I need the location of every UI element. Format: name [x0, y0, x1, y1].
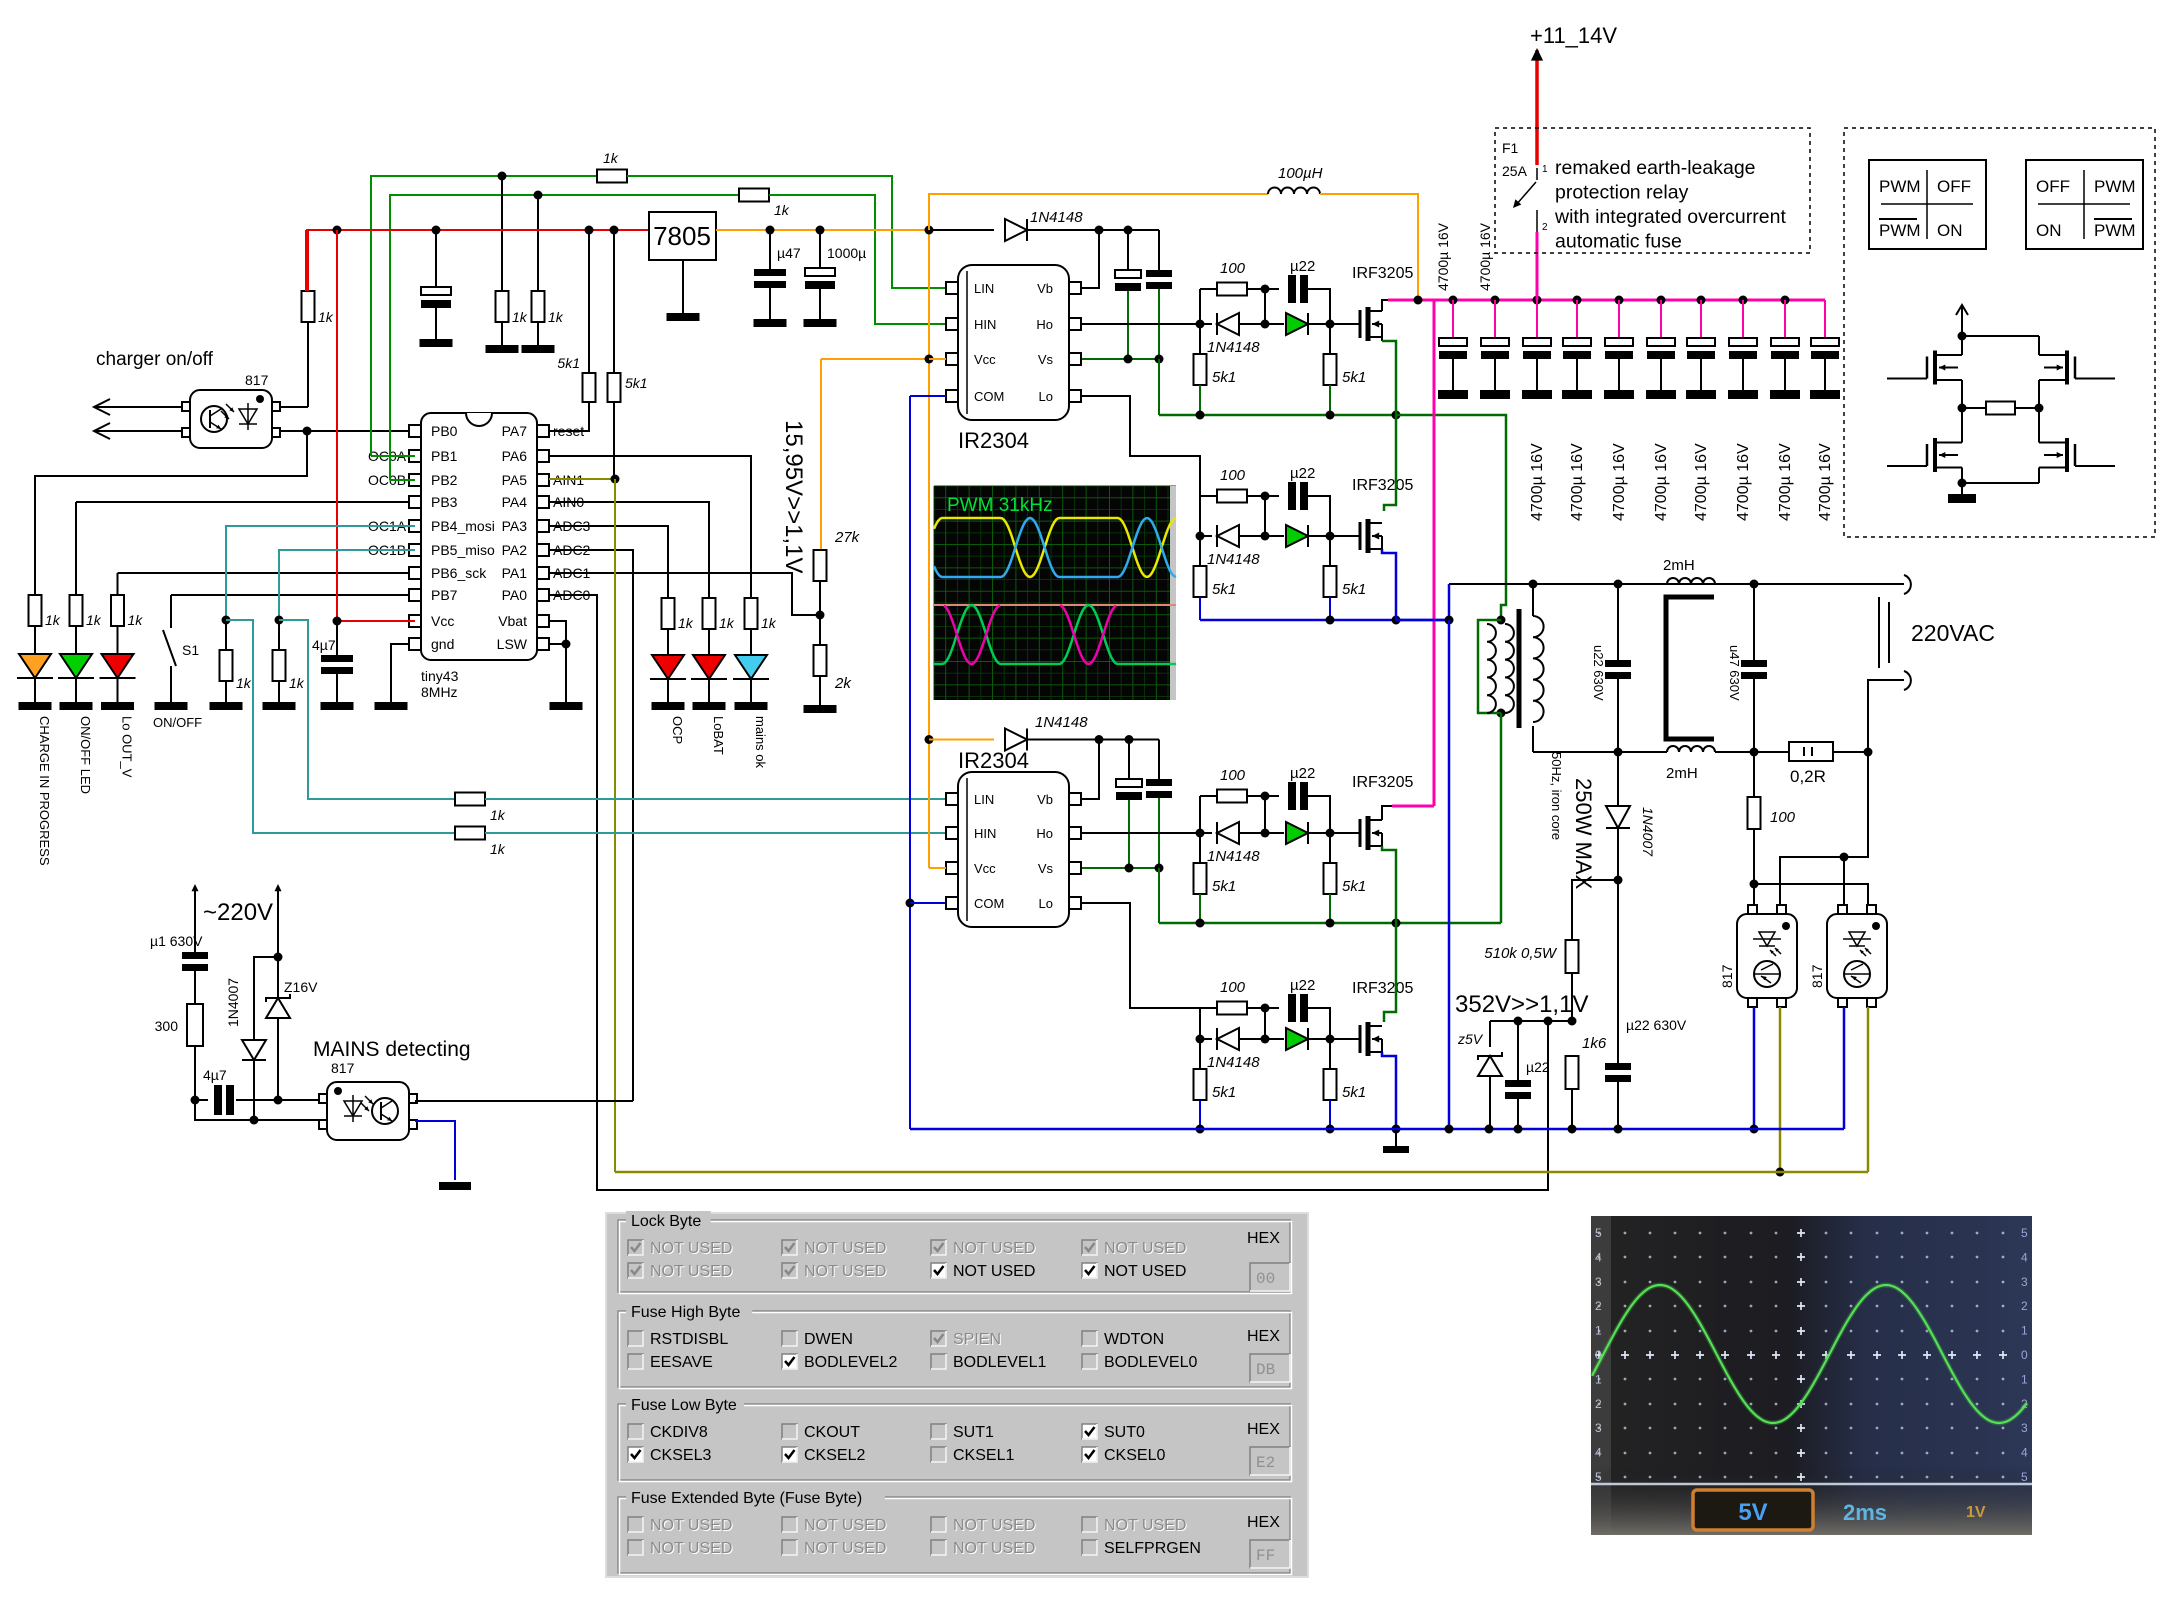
svg-text:PA3: PA3: [502, 518, 528, 534]
svg-text:HEX: HEX: [1247, 1230, 1280, 1247]
svg-text:0: 0: [2021, 1348, 2028, 1362]
svg-text:00: 00: [1256, 1270, 1275, 1288]
svg-text:PWM: PWM: [2094, 177, 2136, 196]
svg-text:1k6: 1k6: [1582, 1035, 1607, 1052]
svg-text:COM: COM: [974, 896, 1004, 911]
svg-text:OFF: OFF: [1937, 177, 1971, 196]
svg-text:Ho: Ho: [1036, 826, 1053, 841]
svg-text:LSW: LSW: [497, 636, 528, 652]
svg-text:HEX: HEX: [1247, 1514, 1280, 1531]
svg-text:SPIEN: SPIEN: [953, 1331, 1001, 1348]
svg-text:2: 2: [1595, 1397, 1602, 1411]
svg-text:15,95V>>1,1V: 15,95V>>1,1V: [780, 420, 807, 573]
svg-text:Lo OUT_V: Lo OUT_V: [120, 716, 135, 778]
svg-text:CHARGE IN PROGRESS: CHARGE IN PROGRESS: [37, 716, 52, 866]
svg-text:NOT USED: NOT USED: [1104, 1263, 1186, 1280]
svg-text:PA1: PA1: [502, 565, 528, 581]
svg-text:5k1: 5k1: [625, 375, 648, 391]
svg-text:4700µ 16V: 4700µ 16V: [1477, 222, 1493, 291]
svg-text:PA2: PA2: [502, 542, 528, 558]
svg-text:1k: 1k: [128, 612, 144, 628]
svg-text:1V: 1V: [1966, 1504, 1986, 1521]
svg-text:HIN: HIN: [974, 317, 996, 332]
svg-text:charger on/off: charger on/off: [96, 349, 214, 370]
svg-text:NOT USED: NOT USED: [804, 1240, 886, 1257]
svg-text:NOT USED: NOT USED: [1104, 1517, 1186, 1534]
svg-text:u22 630V: u22 630V: [1591, 645, 1606, 701]
svg-text:4700µ 16V: 4700µ 16V: [1611, 443, 1628, 521]
svg-text:Vb: Vb: [1037, 792, 1053, 807]
svg-text:CKSEL1: CKSEL1: [953, 1447, 1014, 1464]
svg-text:4700µ 16V: 4700µ 16V: [1817, 443, 1834, 521]
svg-text:5k1: 5k1: [1342, 1084, 1366, 1101]
svg-text:u47 630V: u47 630V: [1727, 645, 1742, 701]
svg-text:Fuse Extended Byte (Fuse Byte): Fuse Extended Byte (Fuse Byte): [631, 1490, 862, 1507]
svg-text:Vb: Vb: [1037, 281, 1053, 296]
svg-text:BODLEVEL2: BODLEVEL2: [804, 1354, 897, 1371]
svg-text:Vcc: Vcc: [974, 861, 996, 876]
svg-text:817: 817: [1719, 964, 1735, 988]
svg-text:5: 5: [2021, 1226, 2028, 1240]
svg-text:with integrated overcurrent: with integrated overcurrent: [1554, 206, 1786, 228]
svg-text:1: 1: [1542, 164, 1548, 175]
svg-text:817: 817: [1809, 964, 1825, 988]
svg-text:25A: 25A: [1502, 163, 1528, 179]
svg-text:µ22: µ22: [1290, 258, 1315, 275]
svg-text:817: 817: [331, 1060, 355, 1076]
svg-text:1k: 1k: [774, 202, 790, 218]
svg-text:NOT USED: NOT USED: [650, 1517, 732, 1534]
svg-text:352V>>1,1V: 352V>>1,1V: [1455, 991, 1588, 1018]
svg-text:µ47: µ47: [777, 245, 801, 261]
svg-text:1k: 1k: [761, 615, 777, 631]
svg-text:NOT USED: NOT USED: [953, 1240, 1035, 1257]
svg-text:Lo: Lo: [1039, 389, 1053, 404]
svg-text:PWM: PWM: [1879, 221, 1921, 240]
svg-text:LIN: LIN: [974, 281, 994, 296]
svg-text:LoBAT: LoBAT: [711, 716, 726, 755]
svg-text:S1: S1: [182, 642, 199, 658]
svg-text:250W MAX: 250W MAX: [1571, 778, 1596, 890]
svg-text:PA7: PA7: [502, 423, 528, 439]
svg-text:BODLEVEL1: BODLEVEL1: [953, 1354, 1046, 1371]
svg-text:EESAVE: EESAVE: [650, 1354, 713, 1371]
svg-text:1k: 1k: [490, 807, 506, 823]
svg-text:Lo: Lo: [1039, 896, 1053, 911]
svg-text:IR2304: IR2304: [958, 428, 1029, 453]
svg-text:300: 300: [155, 1018, 179, 1034]
svg-text:100: 100: [1770, 809, 1796, 826]
svg-text:F1: F1: [1502, 140, 1519, 156]
svg-text:5: 5: [1595, 1470, 1602, 1484]
svg-text:µ22: µ22: [1290, 765, 1315, 782]
svg-text:CKSEL0: CKSEL0: [1104, 1447, 1165, 1464]
svg-text:~220V: ~220V: [203, 899, 273, 926]
svg-text:1N4148: 1N4148: [1035, 714, 1088, 731]
svg-text:PA6: PA6: [502, 448, 528, 464]
svg-text:3: 3: [2021, 1275, 2028, 1289]
svg-text:SUT0: SUT0: [1104, 1424, 1145, 1441]
svg-text:1k: 1k: [512, 309, 528, 325]
svg-text:2ms: 2ms: [1843, 1500, 1887, 1525]
svg-text:µ22 630V: µ22 630V: [1626, 1017, 1687, 1033]
svg-text:Vcc: Vcc: [974, 352, 996, 367]
svg-text:remaked earth-leakage: remaked earth-leakage: [1555, 157, 1756, 179]
svg-text:1N4007: 1N4007: [1640, 807, 1656, 857]
svg-text:3: 3: [2021, 1421, 2028, 1435]
svg-text:220VAC: 220VAC: [1911, 620, 1995, 646]
svg-text:100: 100: [1220, 767, 1246, 784]
svg-text:2: 2: [1595, 1299, 1602, 1313]
svg-text:1N4007: 1N4007: [225, 978, 241, 1027]
svg-text:1N4148: 1N4148: [1207, 1054, 1260, 1071]
svg-text:5k1: 5k1: [557, 355, 580, 371]
svg-text:PA5: PA5: [502, 472, 528, 488]
svg-text:CKSEL2: CKSEL2: [804, 1447, 865, 1464]
svg-text:4700µ 16V: 4700µ 16V: [1693, 443, 1710, 521]
svg-text:4700µ 16V: 4700µ 16V: [1653, 443, 1670, 521]
svg-text:SUT1: SUT1: [953, 1424, 994, 1441]
svg-text:4700µ 16V: 4700µ 16V: [1435, 222, 1451, 291]
svg-text:4700µ 16V: 4700µ 16V: [1735, 443, 1752, 521]
svg-text:PB7: PB7: [431, 587, 458, 603]
svg-text:HIN: HIN: [974, 826, 996, 841]
svg-text:817: 817: [245, 372, 269, 388]
svg-text:PB1: PB1: [431, 448, 458, 464]
svg-text:IRF3205: IRF3205: [1352, 980, 1413, 997]
svg-text:1k: 1k: [678, 615, 694, 631]
svg-text:1000µ: 1000µ: [827, 245, 866, 261]
svg-text:µ22: µ22: [1290, 465, 1315, 482]
svg-text:PB5_miso: PB5_miso: [431, 542, 495, 558]
svg-text:ON: ON: [1937, 221, 1963, 240]
svg-text:+11_14V: +11_14V: [1530, 23, 1617, 48]
svg-text:5: 5: [2021, 1470, 2028, 1484]
svg-text:8MHz: 8MHz: [421, 684, 458, 700]
svg-text:PWM: PWM: [2094, 221, 2136, 240]
svg-text:100: 100: [1220, 467, 1246, 484]
svg-text:7805: 7805: [653, 221, 711, 251]
svg-text:Vs: Vs: [1038, 352, 1054, 367]
svg-text:µ22: µ22: [1290, 977, 1315, 994]
svg-text:IR2304: IR2304: [958, 748, 1029, 773]
svg-text:protection relay: protection relay: [1555, 182, 1689, 204]
svg-text:MAINS detecting: MAINS detecting: [313, 1038, 471, 1061]
svg-text:2k: 2k: [834, 675, 852, 692]
svg-text:4: 4: [2021, 1446, 2028, 1460]
svg-text:1k: 1k: [490, 841, 506, 857]
svg-text:1k: 1k: [719, 615, 735, 631]
svg-text:IRF3205: IRF3205: [1352, 477, 1413, 494]
svg-text:4µ7: 4µ7: [312, 637, 336, 653]
svg-text:4: 4: [1595, 1250, 1602, 1264]
svg-text:Fuse Low Byte: Fuse Low Byte: [631, 1397, 737, 1414]
svg-text:100: 100: [1220, 260, 1246, 277]
svg-text:5k1: 5k1: [1342, 581, 1366, 598]
svg-text:PWM: PWM: [1879, 177, 1921, 196]
svg-text:1: 1: [1595, 1324, 1602, 1338]
svg-text:FF: FF: [1256, 1547, 1275, 1565]
svg-text:1k: 1k: [236, 675, 252, 691]
svg-text:1: 1: [2021, 1372, 2028, 1386]
svg-text:4700µ 16V: 4700µ 16V: [1777, 443, 1794, 521]
svg-text:5: 5: [1595, 1226, 1602, 1240]
svg-text:E2: E2: [1256, 1454, 1275, 1472]
svg-text:DWEN: DWEN: [804, 1331, 853, 1348]
svg-text:2mH: 2mH: [1663, 557, 1695, 574]
svg-text:z5V: z5V: [1457, 1031, 1484, 1047]
svg-text:4: 4: [2021, 1250, 2028, 1264]
svg-text:NOT USED: NOT USED: [953, 1263, 1035, 1280]
svg-text:CKDIV8: CKDIV8: [650, 1424, 708, 1441]
svg-text:1: 1: [1595, 1372, 1602, 1386]
svg-text:DB: DB: [1256, 1361, 1275, 1379]
svg-text:NOT USED: NOT USED: [804, 1263, 886, 1280]
svg-text:mains ok: mains ok: [753, 716, 768, 769]
svg-text:4: 4: [1595, 1446, 1602, 1460]
svg-text:WDTON: WDTON: [1104, 1331, 1164, 1348]
svg-text:NOT USED: NOT USED: [804, 1517, 886, 1534]
svg-text:5k1: 5k1: [1212, 369, 1236, 386]
svg-text:Vbat: Vbat: [498, 613, 527, 629]
svg-text:Ho: Ho: [1036, 317, 1053, 332]
svg-text:100µH: 100µH: [1278, 165, 1323, 182]
svg-text:1k: 1k: [289, 675, 305, 691]
svg-text:1: 1: [2021, 1324, 2028, 1338]
svg-text:NOT USED: NOT USED: [650, 1240, 732, 1257]
svg-text:5k1: 5k1: [1212, 1084, 1236, 1101]
svg-text:PB3: PB3: [431, 494, 458, 510]
svg-text:1k: 1k: [86, 612, 102, 628]
svg-text:PA0: PA0: [502, 587, 528, 603]
svg-text:NOT USED: NOT USED: [650, 1540, 732, 1557]
svg-text:PB0: PB0: [431, 423, 458, 439]
svg-text:PB4_mosi: PB4_mosi: [431, 518, 495, 534]
svg-text:Vcc: Vcc: [431, 613, 454, 629]
svg-text:Vs: Vs: [1038, 861, 1054, 876]
svg-text:LIN: LIN: [974, 792, 994, 807]
svg-text:OFF: OFF: [2036, 177, 2070, 196]
svg-text:automatic fuse: automatic fuse: [1555, 231, 1682, 253]
svg-text:2: 2: [2021, 1299, 2028, 1313]
svg-text:5k1: 5k1: [1212, 581, 1236, 598]
svg-text:5k1: 5k1: [1212, 878, 1236, 895]
svg-text:HEX: HEX: [1247, 1328, 1280, 1345]
svg-text:CKSEL3: CKSEL3: [650, 1447, 711, 1464]
svg-text:NOT USED: NOT USED: [953, 1540, 1035, 1557]
svg-text:PB6_sck: PB6_sck: [431, 565, 487, 581]
svg-text:ON/OFF LED: ON/OFF LED: [78, 716, 93, 794]
svg-text:1k: 1k: [318, 309, 334, 325]
svg-text:4700µ 16V: 4700µ 16V: [1569, 443, 1586, 521]
svg-text:tiny43: tiny43: [421, 668, 459, 684]
svg-text:OCP: OCP: [670, 716, 685, 744]
svg-text:1N4148: 1N4148: [1207, 848, 1260, 865]
svg-text:PB2: PB2: [431, 472, 458, 488]
svg-text:50Hz, iron core: 50Hz, iron core: [1549, 752, 1564, 840]
svg-text:NOT USED: NOT USED: [1104, 1240, 1186, 1257]
svg-text:27k: 27k: [834, 529, 861, 546]
svg-text:NOT USED: NOT USED: [953, 1517, 1035, 1534]
svg-text:HEX: HEX: [1247, 1421, 1280, 1438]
svg-text:µ1 630V: µ1 630V: [150, 933, 203, 949]
svg-text:CKOUT: CKOUT: [804, 1424, 860, 1441]
svg-text:Lock Byte: Lock Byte: [631, 1213, 701, 1230]
svg-text:5k1: 5k1: [1342, 878, 1366, 895]
svg-text:0,2R: 0,2R: [1790, 767, 1826, 786]
svg-text:COM: COM: [974, 389, 1004, 404]
svg-text:RSTDISBL: RSTDISBL: [650, 1331, 728, 1348]
svg-text:4µ7: 4µ7: [203, 1067, 227, 1083]
svg-text:Fuse High Byte: Fuse High Byte: [631, 1304, 740, 1321]
svg-text:BODLEVEL0: BODLEVEL0: [1104, 1354, 1197, 1371]
svg-text:5k1: 5k1: [1342, 369, 1366, 386]
svg-text:Z16V: Z16V: [284, 979, 318, 995]
svg-text:µ22: µ22: [1526, 1059, 1550, 1075]
svg-text:PWM 31kHz: PWM 31kHz: [947, 495, 1053, 516]
svg-text:5V: 5V: [1738, 1499, 1767, 1526]
svg-text:1N4148: 1N4148: [1030, 209, 1083, 226]
svg-text:NOT USED: NOT USED: [804, 1540, 886, 1557]
svg-text:1k: 1k: [603, 150, 619, 166]
svg-text:SELFPRGEN: SELFPRGEN: [1104, 1540, 1201, 1557]
svg-text:2: 2: [1542, 222, 1548, 233]
svg-text:ON/OFF: ON/OFF: [153, 715, 202, 730]
svg-text:IRF3205: IRF3205: [1352, 265, 1413, 282]
svg-text:PA4: PA4: [502, 494, 528, 510]
svg-text:1k: 1k: [45, 612, 61, 628]
svg-text:4700µ 16V: 4700µ 16V: [1529, 443, 1546, 521]
svg-text:1N4148: 1N4148: [1207, 339, 1260, 356]
svg-text:1k: 1k: [548, 309, 564, 325]
svg-text:3: 3: [1595, 1275, 1602, 1289]
svg-text:3: 3: [1595, 1421, 1602, 1435]
svg-text:ON: ON: [2036, 221, 2062, 240]
svg-text:gnd: gnd: [431, 636, 454, 652]
svg-text:2mH: 2mH: [1666, 765, 1698, 782]
svg-text:100: 100: [1220, 979, 1246, 996]
svg-text:IRF3205: IRF3205: [1352, 774, 1413, 791]
svg-text:510k 0,5W: 510k 0,5W: [1484, 945, 1558, 962]
svg-text:NOT USED: NOT USED: [650, 1263, 732, 1280]
svg-text:1N4148: 1N4148: [1207, 551, 1260, 568]
